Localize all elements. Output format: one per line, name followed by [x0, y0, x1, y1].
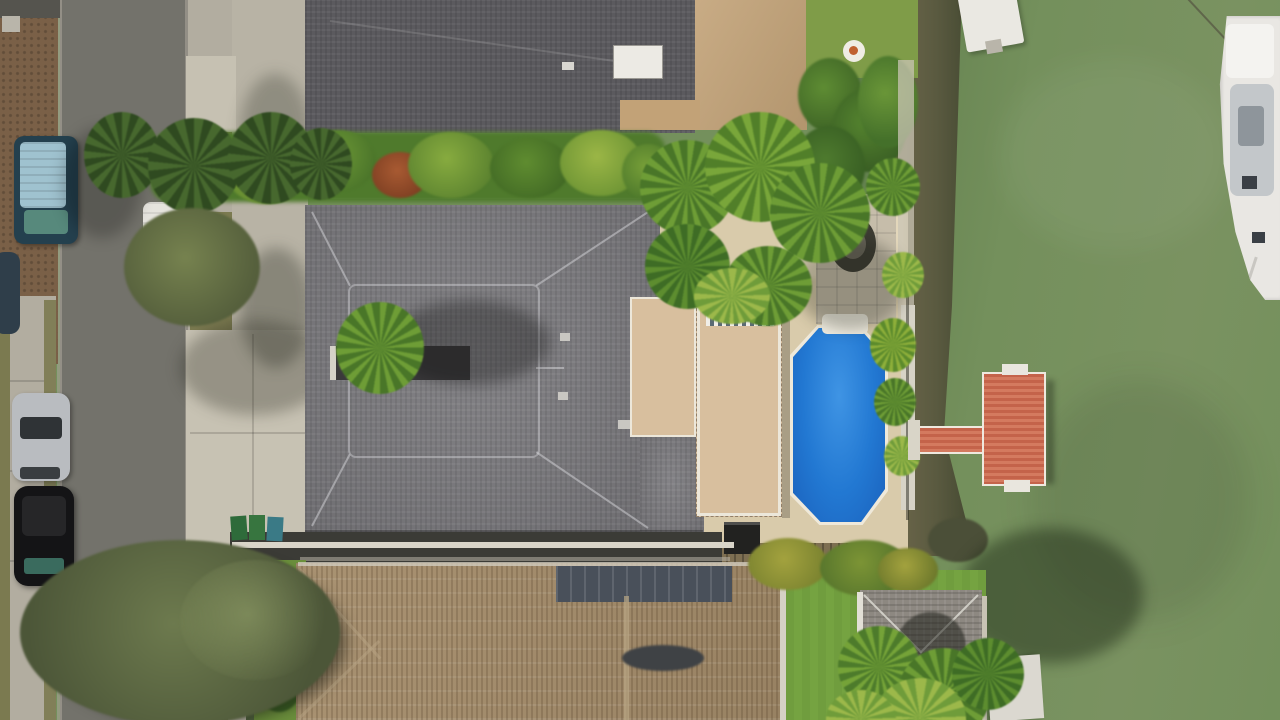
palm-tree-bright [694, 268, 770, 324]
main-house-roof-ext [640, 433, 704, 539]
norfolk-pine [148, 118, 240, 214]
car-rear-window [20, 467, 60, 479]
solar-panels [556, 566, 732, 602]
parked-car-partial [0, 252, 20, 334]
top-house-tan-roof [695, 0, 807, 130]
top-house-skylight [613, 45, 663, 79]
yacht-window [1252, 232, 1265, 243]
top-house-tan-roof-ext [620, 100, 700, 130]
garden-table-items [849, 46, 858, 55]
aerial-photo-scene [0, 0, 1280, 720]
roof-vent [558, 392, 568, 400]
lanai-roof-b [696, 303, 782, 517]
car-roof-highlight [22, 496, 66, 536]
boat-dock-ridge-cap-bottom [1004, 480, 1030, 492]
recycling-bin-blue [266, 517, 283, 542]
boat-dock-ridge-cap-top [1002, 364, 1028, 375]
courtyard-palm [336, 302, 424, 394]
bottom-roof-valley-shadow [622, 645, 704, 671]
olive-tree-mid [124, 208, 260, 326]
dock-walkway-roof [916, 426, 986, 454]
roof-vent [618, 420, 630, 429]
parked-car-silver [12, 393, 70, 481]
sidewalk-joint [8, 380, 44, 382]
seawall-palm [866, 158, 920, 216]
van-windshield [24, 210, 68, 234]
yard-palm [952, 638, 1024, 710]
yacht-window [1242, 176, 1257, 189]
swimming-pool [793, 328, 885, 522]
lanai-roof-a [630, 297, 696, 437]
courtyard-notch-sill [330, 346, 336, 380]
canopy-light-tufts [180, 560, 330, 680]
walkway-inner-line [300, 557, 730, 561]
walkway-fascia [232, 542, 734, 548]
grass-strip-left [0, 300, 10, 720]
seawall-palm [870, 318, 916, 372]
driveway-joint [190, 432, 306, 434]
lanai-shadow [782, 306, 790, 518]
dock-walkway-posts [908, 420, 920, 460]
floating-dock-foot [985, 39, 1003, 55]
norfolk-pine [290, 128, 352, 200]
yacht-cabin-hatch [1238, 106, 1264, 146]
yacht-stern-deck [1226, 24, 1274, 78]
yard-hedge [748, 538, 828, 590]
roof-vent [560, 333, 570, 341]
hedge-tuft [408, 132, 494, 198]
trash-bin-green [230, 515, 248, 540]
boat-dock-roof [982, 372, 1046, 486]
wall-pillar [2, 16, 20, 32]
trash-bin-green [249, 515, 265, 540]
palm-tree [770, 163, 870, 263]
car-windshield [20, 417, 62, 439]
hedge-tuft [490, 138, 570, 198]
van-roof-panel [20, 142, 66, 208]
yard-hedge [878, 548, 938, 592]
water-light-patch [1000, 60, 1230, 250]
ridge-apex [536, 367, 564, 369]
dock-shadow [1046, 380, 1054, 484]
seawall-palm [874, 378, 916, 426]
roof-vent [562, 62, 574, 70]
seawall-palm [882, 252, 924, 298]
